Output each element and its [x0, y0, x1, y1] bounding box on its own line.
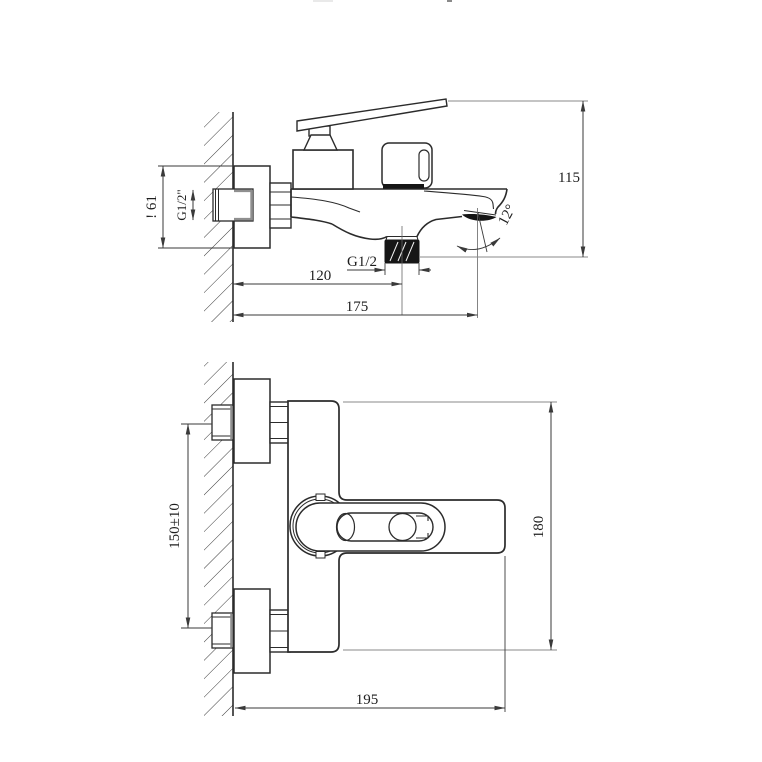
front-view: 150±10 180 195	[167, 362, 557, 716]
cartridge-housing	[293, 150, 353, 189]
inlet-fitting-top	[212, 405, 233, 440]
dim-label-g12-inlet: G1/2"	[174, 189, 189, 220]
dim-label-61: ! 61	[144, 195, 160, 219]
escutcheon-top	[234, 379, 270, 463]
escutcheon-bottom	[234, 589, 270, 673]
dim-wall-to-spout: 175	[233, 299, 478, 315]
hex-nut	[270, 183, 291, 228]
hex-nut-bottom	[270, 610, 290, 652]
drawing-canvas: 115 ! 61 G1/2" G1/2 120	[0, 0, 762, 762]
dim-label-180: 180	[531, 516, 547, 539]
faucet-technical-drawing: 115 ! 61 G1/2" G1/2 120	[0, 0, 762, 762]
dim-label-g12-outlet: G1/2	[347, 254, 377, 270]
dim-overall-height: 115	[420, 101, 588, 257]
dim-label-175: 175	[346, 299, 369, 315]
diverter-knob	[382, 143, 432, 189]
faucet-body	[291, 189, 507, 240]
dim-label-150: 150±10	[167, 503, 183, 549]
handle-front	[290, 494, 445, 558]
handle-tab-bottom	[316, 552, 325, 559]
cropped-edge-marks	[313, 0, 452, 2]
dim-label-120: 120	[309, 268, 332, 284]
dim-label-195: 195	[356, 692, 379, 708]
dim-spout-angle: 12°	[457, 202, 519, 252]
hex-nut-top	[270, 402, 290, 443]
lever-bar	[297, 99, 447, 131]
dim-inlet-thread: G1/2"	[174, 189, 193, 220]
dim-label-115: 115	[558, 170, 580, 186]
inlet-fitting	[213, 189, 253, 221]
handle-stem	[304, 135, 337, 150]
inlet-fitting-bottom	[212, 613, 233, 648]
handle-tab-top	[316, 494, 325, 501]
side-view: 115 ! 61 G1/2" G1/2 120	[144, 99, 588, 322]
